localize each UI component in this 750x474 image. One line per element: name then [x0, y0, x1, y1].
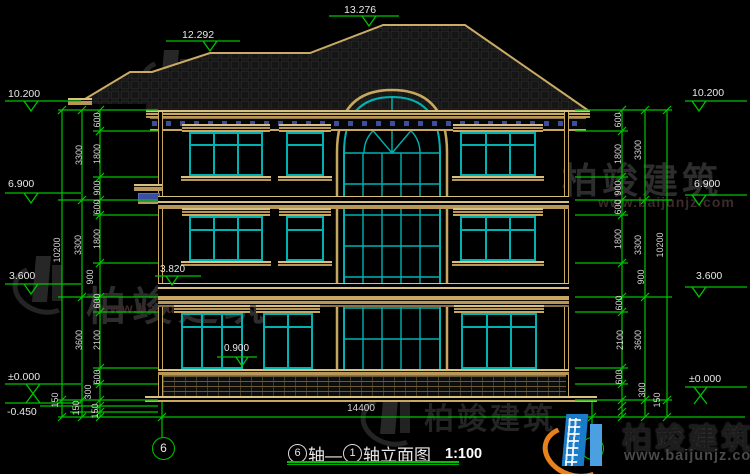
level-marker	[684, 386, 748, 408]
level-right-10200: 10.200	[692, 87, 724, 99]
dim-label: 1800	[613, 144, 623, 164]
level-left-minus450: -0.450	[7, 406, 37, 418]
dim-label: 600	[614, 369, 624, 384]
level-left-6900: 6.900	[8, 178, 34, 190]
level-left-3600: 3.600	[9, 270, 35, 282]
level-marker	[154, 275, 202, 288]
dim-label: 600	[92, 369, 102, 384]
level-marker	[684, 286, 748, 300]
dim-label: 300	[83, 384, 93, 399]
level-0900: 0.900	[224, 343, 249, 354]
dim-label: 150	[50, 392, 60, 407]
cad-elevation-canvas: 柏竣建筑 www.baijunjz.com 柏竣建筑 www.baijunjz.…	[0, 0, 750, 474]
dim-label: 3600	[633, 330, 643, 350]
dim-label: 3600	[74, 330, 84, 350]
level-marker	[684, 194, 748, 208]
dim-label: 900	[92, 180, 102, 195]
dim-label: 150	[71, 400, 81, 415]
level-marker	[684, 100, 748, 114]
level-marker	[4, 283, 82, 297]
dim-label: 3300	[73, 235, 83, 255]
dim-label: 3300	[633, 235, 643, 255]
dim-label: 150	[652, 392, 662, 407]
dim-label: 1800	[92, 144, 102, 164]
level-marker	[4, 192, 82, 206]
title-underline	[287, 461, 459, 466]
brand-logo: 柏竣建筑 www.baijunjz.com	[540, 412, 750, 474]
level-marker	[216, 356, 258, 369]
dim-label: 600	[92, 112, 102, 127]
level-left-zero: ±0.000	[8, 371, 40, 383]
dim-label: 600	[614, 295, 624, 310]
level-right-6900: 6.900	[694, 178, 720, 190]
logo-building-icon	[590, 424, 602, 466]
title-scale: 1:100	[445, 446, 482, 462]
dim-label: 600	[613, 112, 623, 127]
level-marker	[165, 40, 241, 54]
dim-label-total-width: 14400	[347, 403, 375, 414]
dim-label: 10200	[52, 237, 62, 262]
dim-label: 3300	[633, 140, 643, 160]
dim-label: 2100	[92, 330, 102, 350]
level-right-3600: 3.600	[696, 270, 722, 282]
level-marker	[328, 15, 400, 29]
dim-label: 1800	[613, 229, 623, 249]
logo-url-text: www.baijunjz.com	[624, 448, 750, 464]
level-marker	[4, 100, 82, 114]
dim-label: 1800	[92, 229, 102, 249]
dim-label: 900	[613, 180, 623, 195]
dim-label: 300	[637, 382, 647, 397]
dim-label: 600	[613, 199, 623, 214]
level-right-zero: ±0.000	[689, 373, 721, 385]
level-3820: 3.820	[160, 264, 185, 275]
dim-label: 2100	[615, 330, 625, 350]
logo-building-icon	[562, 414, 589, 466]
dim-label: 3300	[74, 145, 84, 165]
dim-label: 900	[85, 269, 95, 284]
dim-label: 10200	[655, 232, 665, 257]
level-left-10200: 10.200	[8, 88, 40, 100]
dim-label: 600	[92, 199, 102, 214]
dim-label: 150	[90, 403, 100, 418]
dim-label: 900	[636, 269, 646, 284]
dim-label: 600	[92, 293, 102, 308]
